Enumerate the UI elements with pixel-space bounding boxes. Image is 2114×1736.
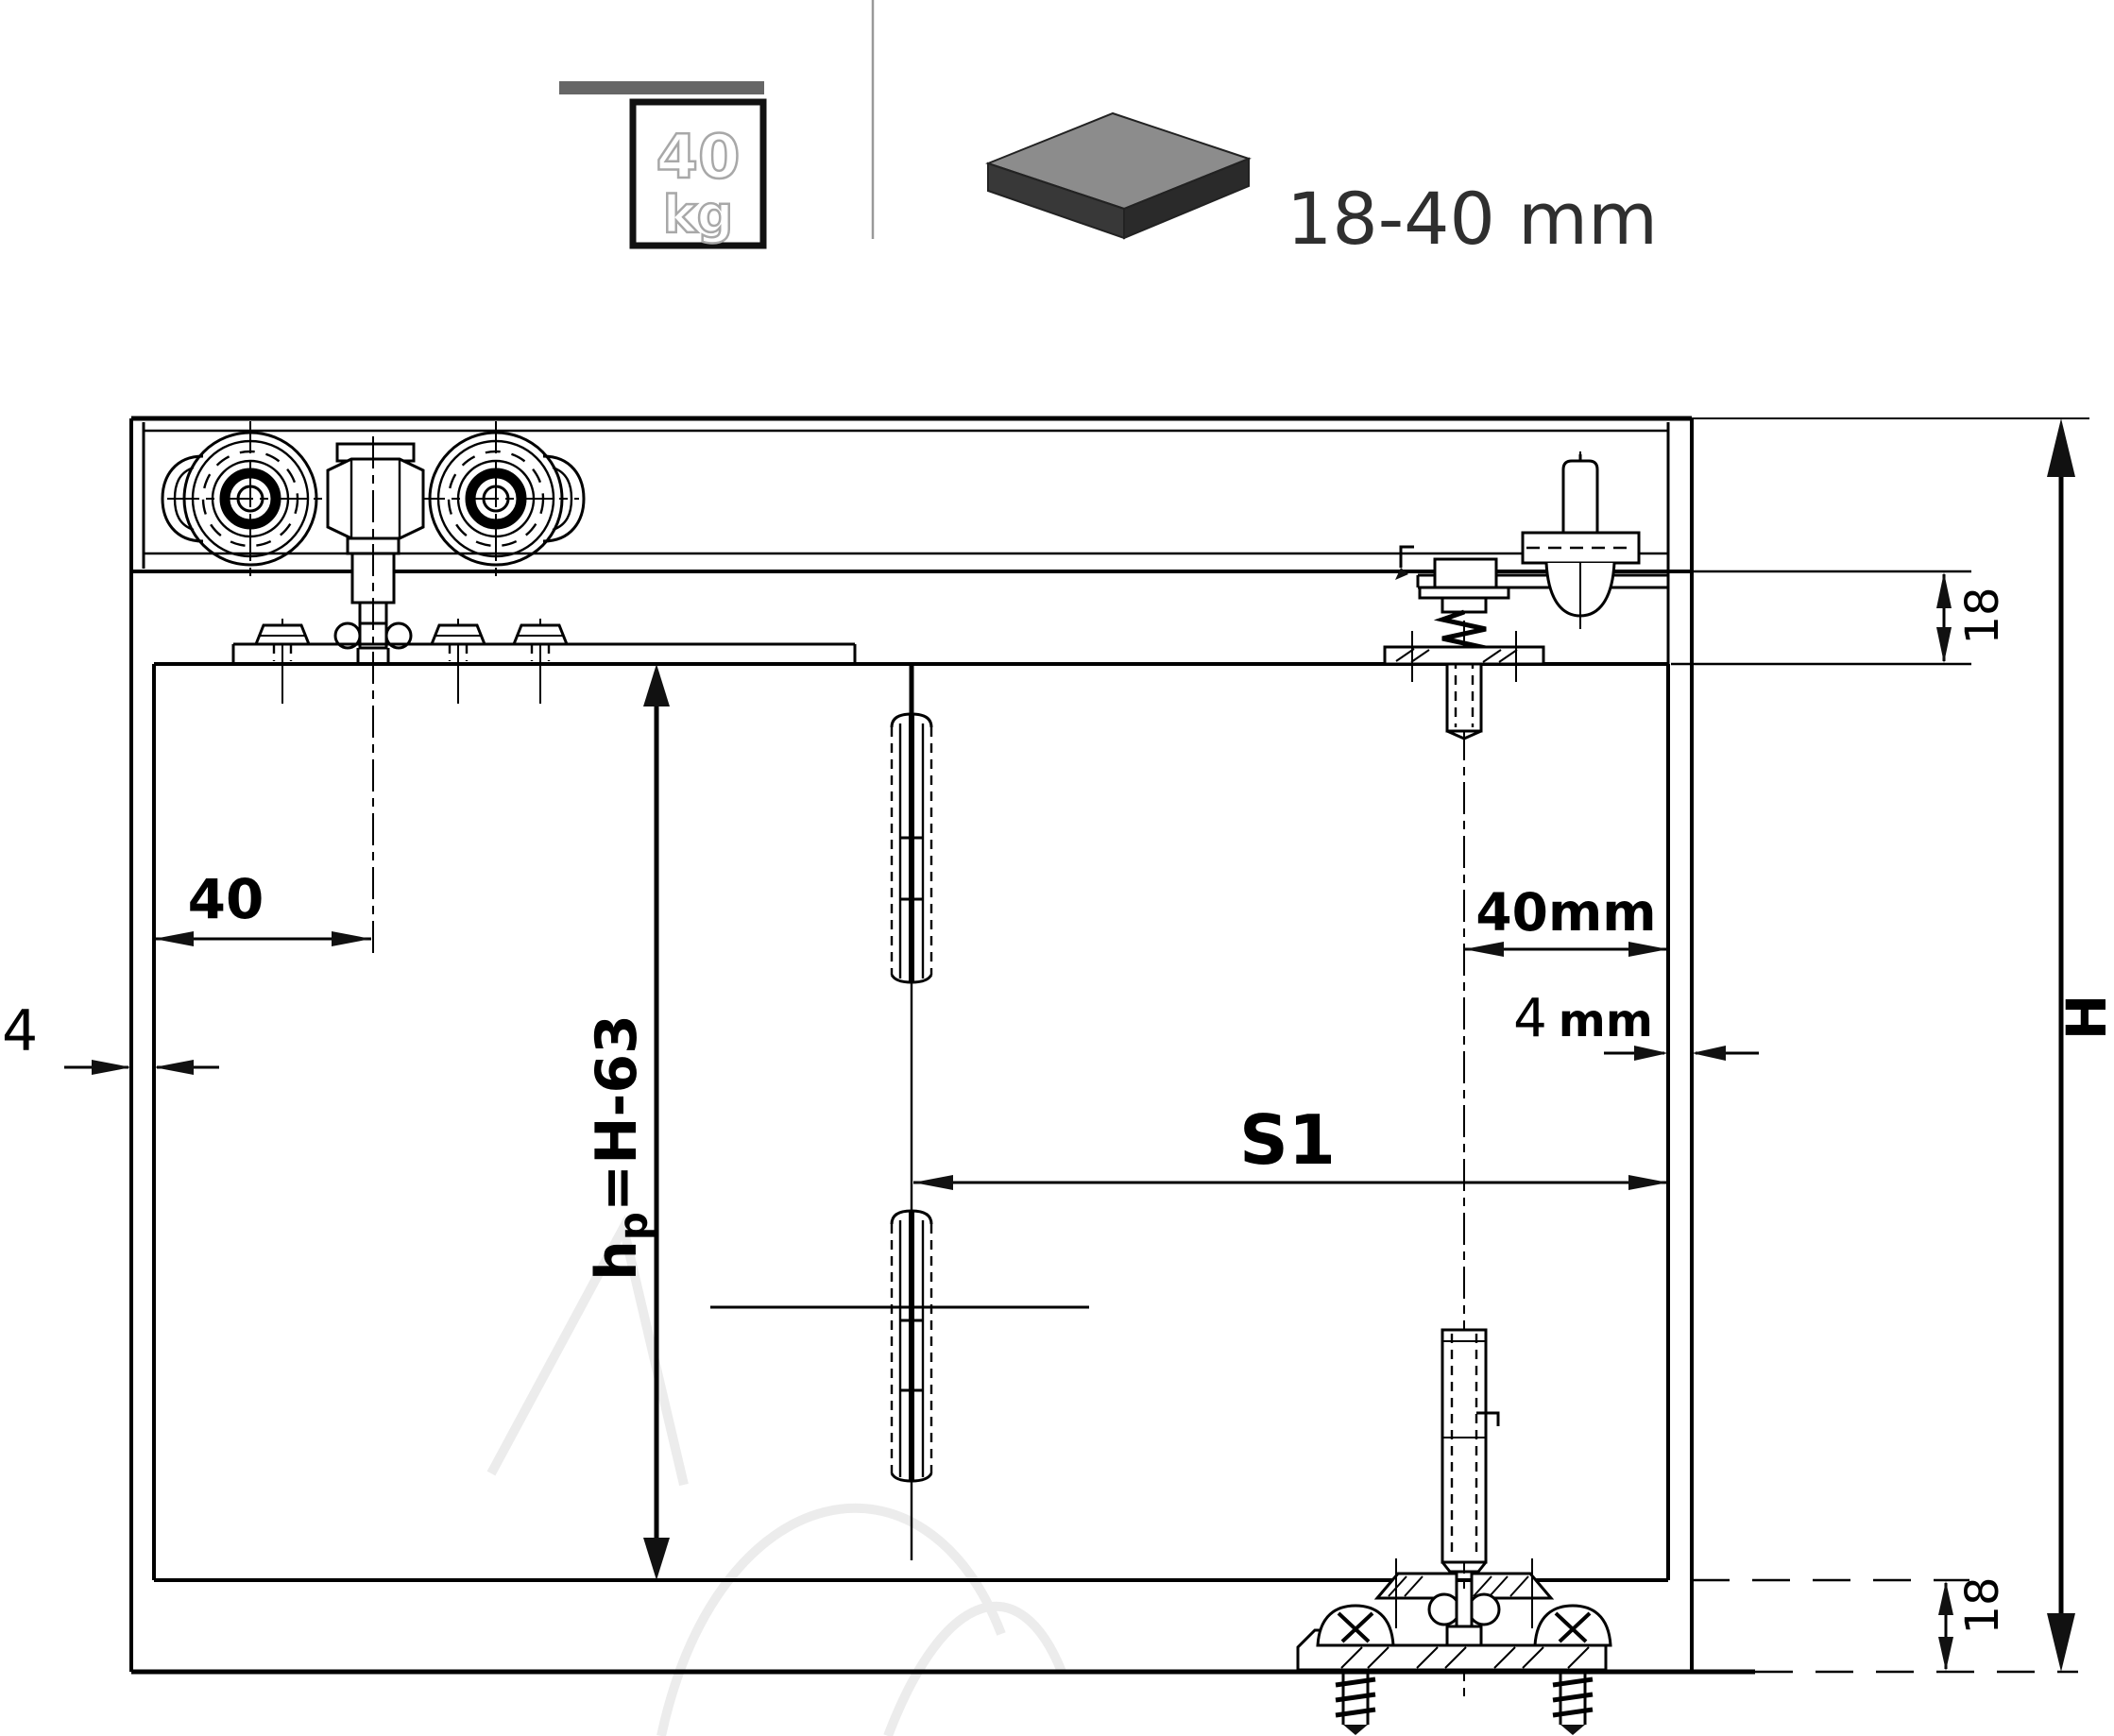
load-value-label: 40 (656, 123, 740, 193)
dim-end-gap: 4mm (1513, 988, 1759, 1061)
load-capacity-icon: 40 kg (559, 81, 764, 246)
dim-end-offset: 40mm (1464, 882, 1668, 957)
adjust-tab (1401, 547, 1414, 568)
door-top-plate (233, 619, 855, 704)
dim-top-inset-label: 18 (1956, 587, 2009, 644)
dim-opening-height: H (2047, 418, 2114, 1672)
dim-side-gap-left: 4 (2, 998, 219, 1075)
dim-side-gap-left-label: 4 (2, 998, 38, 1064)
clamp-block (1435, 559, 1496, 587)
plate-screw (514, 619, 567, 704)
dim-door-height-label: hp=H-63 (584, 1014, 656, 1281)
door-panel (154, 664, 1969, 1580)
dim-end-gap-label: 4mm (1513, 988, 1653, 1049)
trolley-hanger (328, 436, 423, 956)
dim-top-inset: 18 (1671, 571, 2009, 664)
dim-roller-offset-label: 40 (188, 867, 264, 931)
load-unit-label: kg (663, 185, 734, 245)
threaded-rod-top (1447, 655, 1481, 731)
dim-bottom-inset-label: 18 (1956, 1576, 2009, 1634)
dim-travel-label: S1 (1239, 1100, 1336, 1180)
dim-door-height: hp=H-63 (584, 664, 670, 1580)
panel-thickness-icon (988, 113, 1249, 238)
panel-thickness-label: 18-40 mm (1287, 177, 1658, 261)
track-end-bolt (1523, 451, 1639, 629)
plate-screw (256, 619, 309, 704)
dim-roller-offset: 40 (154, 867, 371, 946)
watermark (491, 1228, 1062, 1736)
dim-end-offset-label: 40mm (1475, 882, 1656, 943)
hinge-lower-capsule (892, 1211, 931, 1481)
dim-travel: S1 (913, 1100, 1668, 1190)
plate-screw (432, 619, 485, 704)
pivot-ball (1429, 1594, 1459, 1625)
sliding-door-technical-drawing: 40 kg 18-40 mm (0, 0, 2114, 1736)
clamp-nut (1442, 598, 1486, 612)
dim-bottom-inset: 18 (1938, 1576, 2009, 1671)
hinge-upper-capsule (892, 714, 931, 982)
pivot-ball (1469, 1594, 1499, 1625)
track-bar-glyph (559, 81, 764, 94)
threaded-rod-bottom (1442, 1330, 1486, 1562)
dim-opening-height-label: H (2054, 995, 2114, 1041)
hinge-strip (710, 664, 1089, 1560)
opening-outline (131, 418, 2089, 1672)
